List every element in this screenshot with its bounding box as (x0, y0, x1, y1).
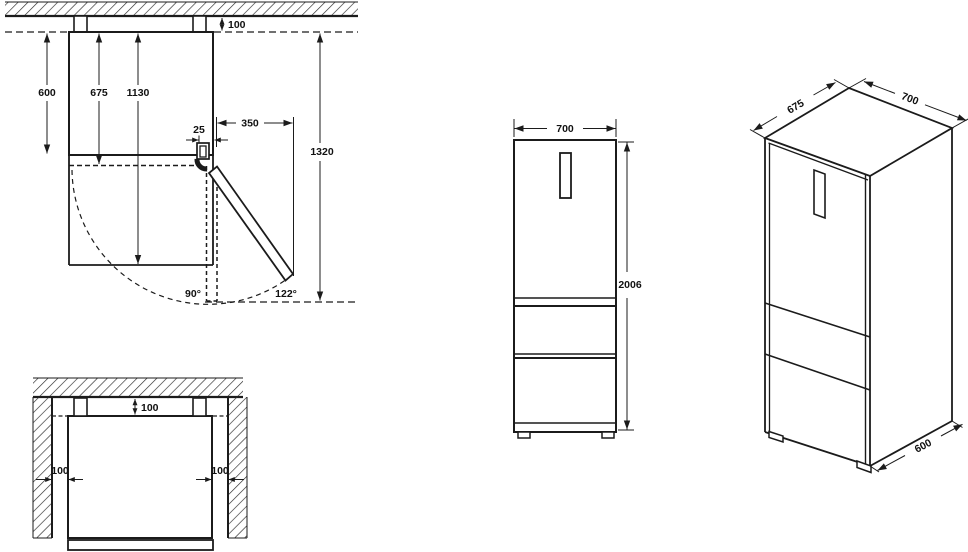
drawer-open-envelope (69, 155, 213, 265)
dim-label-door-projection: 350 (241, 118, 259, 130)
iso-drawer-lines (765, 303, 870, 390)
dimension-drawing-page: 100 600 675 1130 25 (0, 0, 968, 552)
niche-wall-hatch-rear (33, 378, 243, 397)
wall-hatch-top (5, 2, 358, 16)
dimension-rear-clearance: 100 (135, 399, 159, 415)
dim-label-left-clearance: 100 (51, 465, 69, 477)
iso-foot-front (857, 461, 871, 473)
dim-label-front-width: 700 (556, 123, 574, 135)
door-hinge (197, 143, 209, 169)
dim-label-iso-width: 700 (899, 90, 920, 108)
refrigerator-dimension-drawing: 100 600 675 1130 25 (0, 0, 968, 552)
angle-label-90: 90° (185, 288, 201, 300)
angle-label-122: 122° (275, 288, 297, 300)
niche-fridge-outline (68, 416, 212, 538)
door-open-122 (209, 167, 293, 281)
dim-label-iso-body-depth: 600 (913, 437, 934, 456)
dim-label-rear-clearance: 100 (141, 402, 159, 414)
plan-view-door-swing: 100 600 675 1130 25 (5, 2, 358, 304)
niche-spacer-right (193, 398, 206, 416)
dimension-iso-body-depth: 600 (870, 421, 963, 472)
dim-label-iso-depth: 675 (785, 97, 806, 116)
dimension-front-height: 2006 (618, 142, 642, 430)
hinge-knuckle (197, 159, 207, 169)
door-90deg-dashed (207, 166, 218, 301)
niche-spacer-left (74, 398, 87, 416)
front-foot-right (602, 432, 614, 438)
dim-label-hinge-offset: 25 (193, 124, 205, 136)
iso-door-handle (814, 170, 825, 218)
iso-foot-left (769, 432, 783, 443)
dim-label-cabinet-depth: 600 (38, 87, 56, 99)
hinge-pin (200, 146, 206, 157)
iso-bottom-right-edge (870, 421, 952, 466)
dim-label-top-clearance: 100 (228, 19, 246, 31)
front-foot-left (518, 432, 530, 438)
dimension-cabinet-depth: 600 (38, 34, 56, 154)
niche-clearance-view: 100 100 100 (33, 378, 247, 550)
dimension-total-open-depth: 1320 (310, 34, 334, 301)
dim-label-front-height: 2006 (618, 279, 642, 291)
dim-label-door-depth: 675 (90, 87, 108, 99)
front-door-handle (560, 153, 571, 198)
niche-fridge-base (68, 540, 213, 550)
dim-label-open-depth: 1130 (127, 87, 150, 99)
dimension-front-width: 700 (514, 119, 616, 137)
front-view: 700 2006 (514, 119, 642, 438)
niche-wall-hatch-left (33, 397, 52, 538)
dimension-top-clearance: 100 (222, 18, 246, 31)
wall-spacer-right (193, 16, 206, 32)
wall-spacer-left (74, 16, 87, 32)
isometric-view: 675 700 600 (750, 79, 968, 473)
dim-label-right-clearance: 100 (211, 465, 229, 477)
dim-label-total-open-depth: 1320 (310, 146, 334, 158)
niche-wall-hatch-right (228, 397, 247, 538)
